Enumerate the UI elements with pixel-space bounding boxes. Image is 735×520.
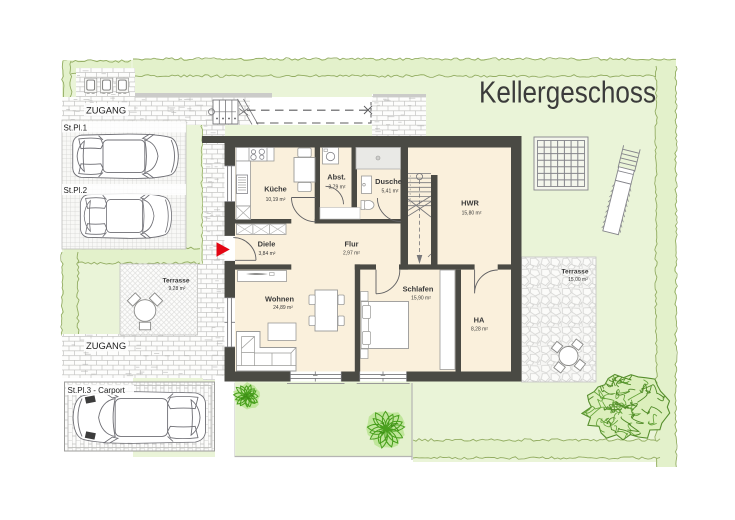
svg-text:Küche: Küche xyxy=(264,185,287,194)
svg-text:15,90 m²: 15,90 m² xyxy=(411,296,431,302)
svg-text:Abst.: Abst. xyxy=(327,173,345,182)
svg-text:2,97 m²: 2,97 m² xyxy=(343,251,360,257)
svg-text:Terrasse: Terrasse xyxy=(162,278,189,285)
svg-text:15,80 m²: 15,80 m² xyxy=(462,211,482,217)
svg-text:10,19 m²: 10,19 m² xyxy=(266,197,286,203)
svg-text:Dusche: Dusche xyxy=(375,177,402,186)
svg-text:Wohnen: Wohnen xyxy=(265,295,294,304)
svg-text:3,84 m²: 3,84 m² xyxy=(259,251,276,257)
svg-text:5,41 m²: 5,41 m² xyxy=(382,189,399,195)
svg-text:ZUGANG: ZUGANG xyxy=(86,340,126,351)
svg-text:ZUGANG: ZUGANG xyxy=(86,105,126,116)
svg-text:St.Pl.2: St.Pl.2 xyxy=(64,186,88,195)
svg-text:Terrasse: Terrasse xyxy=(561,269,588,276)
svg-text:Flur: Flur xyxy=(345,240,359,249)
svg-text:HA: HA xyxy=(474,316,485,325)
svg-text:3,79 m²: 3,79 m² xyxy=(329,185,346,191)
svg-text:Diele: Diele xyxy=(258,240,276,249)
svg-text:8,28 m²: 8,28 m² xyxy=(471,327,488,333)
svg-text:9,28 m²: 9,28 m² xyxy=(169,286,186,292)
svg-text:St.Pl.3 - Carport: St.Pl.3 - Carport xyxy=(68,386,126,395)
svg-text:24,89 m²: 24,89 m² xyxy=(273,305,293,311)
svg-text:15,00 m²: 15,00 m² xyxy=(568,277,588,283)
svg-text:Schlafen: Schlafen xyxy=(403,285,434,294)
svg-text:St.Pl.1: St.Pl.1 xyxy=(64,124,88,133)
svg-text:Kellergeschoss: Kellergeschoss xyxy=(479,75,656,110)
svg-text:HWR: HWR xyxy=(461,199,479,208)
